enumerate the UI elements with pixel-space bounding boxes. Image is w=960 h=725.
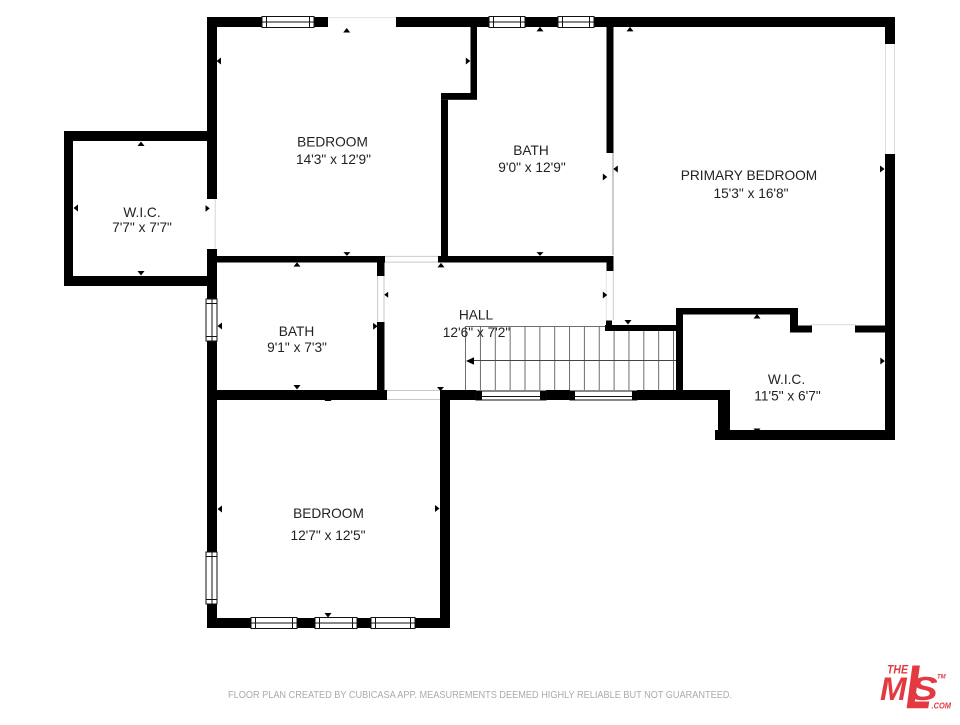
svg-text:12'7" x 12'5": 12'7" x 12'5" (290, 528, 365, 543)
svg-text:BATH: BATH (279, 324, 315, 339)
svg-text:BEDROOM: BEDROOM (297, 135, 368, 150)
svg-text:15'3" x 16'8": 15'3" x 16'8" (713, 186, 788, 201)
svg-text:HALL: HALL (459, 308, 494, 323)
svg-text:BEDROOM: BEDROOM (293, 506, 364, 521)
svg-text:9'1" x 7'3": 9'1" x 7'3" (267, 340, 327, 355)
svg-text:FLOOR PLAN CREATED BY CUBICASA: FLOOR PLAN CREATED BY CUBICASA APP. MEAS… (228, 690, 732, 701)
svg-text:M: M (880, 671, 908, 707)
svg-text:.COM: .COM (932, 700, 952, 710)
svg-text:W.I.C.: W.I.C. (768, 372, 805, 387)
svg-text:BATH: BATH (513, 143, 549, 158)
svg-text:14'3" x 12'9": 14'3" x 12'9" (296, 152, 371, 167)
svg-text:9'0" x 12'9": 9'0" x 12'9" (498, 160, 566, 175)
svg-text:12'6" x 7'2": 12'6" x 7'2" (443, 325, 511, 340)
svg-text:W.I.C.: W.I.C. (123, 205, 160, 220)
svg-text:11'5" x 6'7": 11'5" x 6'7" (754, 389, 821, 404)
svg-text:TM: TM (937, 675, 947, 681)
svg-text:PRIMARY BEDROOM: PRIMARY BEDROOM (681, 168, 817, 183)
svg-text:7'7" x 7'7": 7'7" x 7'7" (112, 220, 172, 235)
